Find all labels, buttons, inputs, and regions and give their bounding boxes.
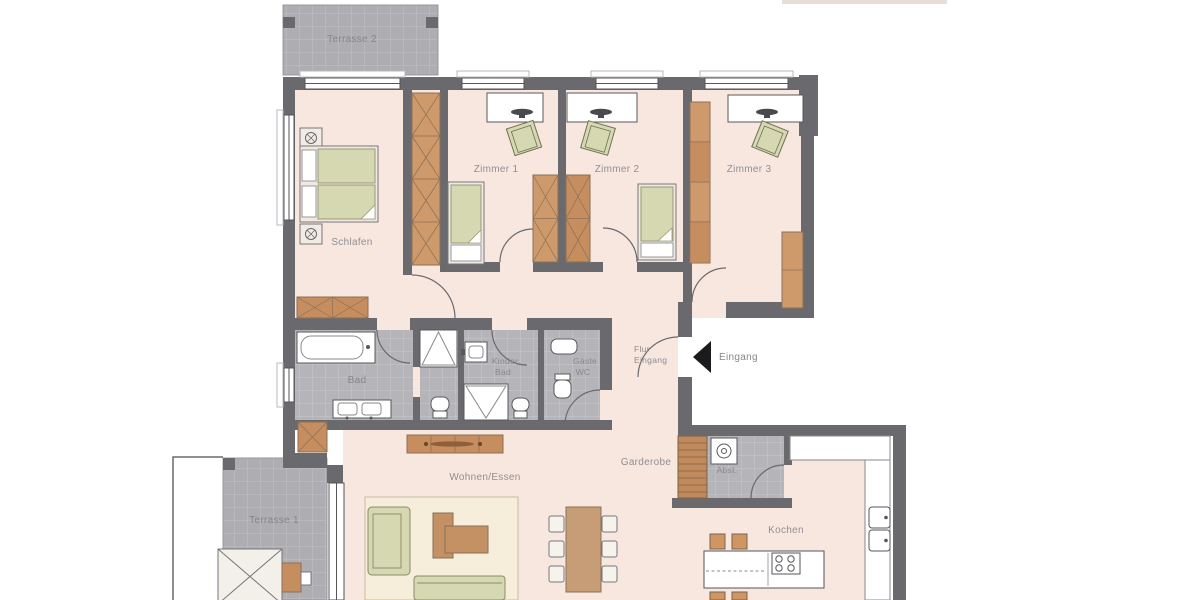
abst-label: Abst. — [717, 465, 738, 475]
terrace-2-label: Terrasse 2 — [327, 34, 377, 45]
terrace-post — [426, 17, 438, 28]
dining-set — [549, 507, 617, 592]
flur-label-2: Eingang — [634, 355, 667, 365]
nightstand — [300, 128, 322, 148]
floor-plan-drawing: Terrasse 2 Terrasse 1 — [0, 0, 1200, 600]
terrace-post — [283, 17, 295, 28]
wardrobe-strip — [533, 175, 558, 262]
toilet-icon — [512, 398, 529, 418]
desk — [487, 93, 543, 122]
single-bed — [638, 184, 676, 260]
gaestewc-label-2: WC — [576, 367, 591, 377]
toilet-icon — [554, 374, 571, 398]
stove-icon — [772, 553, 800, 574]
armchair — [368, 507, 410, 575]
kinderbad-label-1: Kinder — [492, 356, 518, 366]
decor-item — [430, 441, 474, 446]
garderobe-label: Garderobe — [621, 457, 672, 468]
dresser — [782, 232, 803, 308]
wardrobe-schlafen — [412, 93, 440, 265]
parasol-icon — [218, 549, 282, 600]
terrace-post — [223, 458, 235, 470]
dining-table — [566, 507, 601, 592]
sofa — [414, 576, 505, 600]
bad-label: Bad — [348, 375, 367, 386]
shower-icon — [464, 384, 508, 420]
counter-north — [790, 436, 890, 460]
double-bed — [300, 146, 378, 222]
terrace-1-area: Terrasse 1 — [218, 458, 327, 600]
schlafen-label: Schlafen — [331, 237, 372, 248]
toilet-icon — [431, 397, 449, 418]
kinderbad-label-2: Bad — [495, 367, 511, 377]
entrance-arrow-icon — [693, 341, 711, 373]
sink-icon — [551, 339, 577, 354]
single-bed — [448, 182, 484, 264]
terrace-1-label: Terrasse 1 — [249, 515, 299, 526]
flur-label-1: Flur — [634, 344, 650, 354]
gaestewc-label-1: Gäste — [573, 356, 597, 366]
kochen-label: Kochen — [768, 525, 804, 536]
bathtub-icon — [297, 332, 375, 363]
terrace-2-area: Terrasse 2 — [283, 5, 438, 75]
floor-plan-page: Terrasse 2 Terrasse 1 — [0, 0, 1200, 600]
zimmer2-label: Zimmer 2 — [595, 164, 640, 175]
site-boundary-line — [173, 457, 223, 600]
double-sink-icon — [333, 400, 391, 420]
sideboard — [407, 435, 503, 453]
wardrobe-strip — [690, 102, 710, 263]
outdoor-chair — [301, 572, 311, 585]
corner-cabinet — [298, 422, 327, 452]
sink-icon — [461, 342, 487, 362]
wohnen-essen-label: Wohnen/Essen — [449, 472, 520, 483]
wardrobe-strip — [566, 175, 590, 262]
zimmer1-label: Zimmer 1 — [474, 164, 519, 175]
nightstand — [300, 224, 322, 244]
shower-icon — [420, 330, 457, 367]
outdoor-table — [282, 563, 301, 592]
kitchen-island — [704, 551, 824, 588]
cropped-artifact — [782, 0, 947, 4]
sideboard — [297, 297, 368, 318]
eingang-label: Eingang — [719, 352, 758, 363]
zimmer3-label: Zimmer 3 — [727, 164, 772, 175]
washing-machine-icon — [711, 438, 737, 464]
